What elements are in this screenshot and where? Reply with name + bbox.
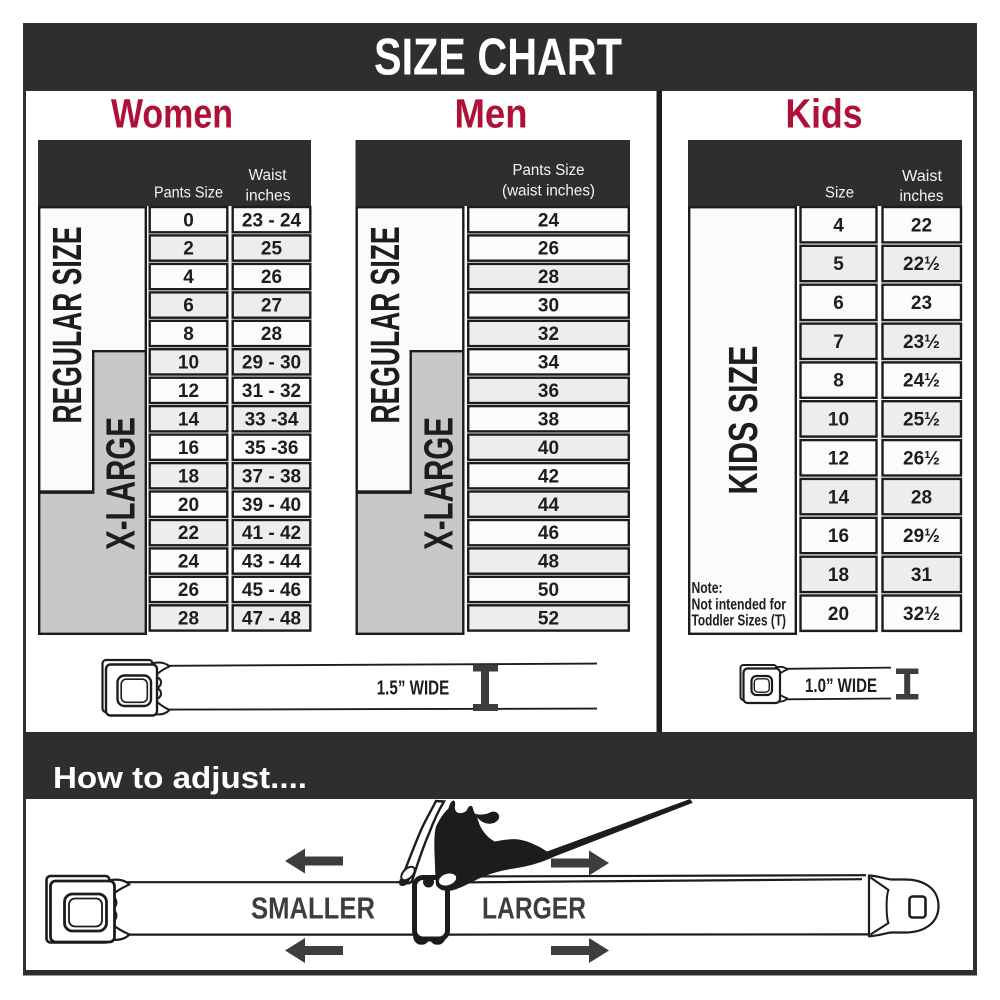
svg-text:44: 44: [538, 495, 560, 516]
svg-text:22: 22: [911, 215, 932, 236]
svg-text:25½: 25½: [903, 410, 940, 431]
svg-text:7: 7: [833, 332, 844, 353]
svg-text:41 - 42: 41 - 42: [242, 523, 301, 544]
svg-text:45 - 46: 45 - 46: [242, 580, 301, 601]
svg-text:23½: 23½: [903, 332, 940, 353]
svg-text:Women: Women: [111, 91, 233, 137]
svg-text:29 - 30: 29 - 30: [242, 353, 301, 374]
svg-text:5: 5: [833, 254, 844, 275]
svg-text:38: 38: [538, 409, 559, 430]
svg-text:26: 26: [538, 239, 559, 260]
svg-text:40: 40: [538, 438, 559, 459]
svg-text:1.0” WIDE: 1.0” WIDE: [805, 675, 877, 697]
svg-text:2: 2: [183, 239, 194, 260]
svg-text:8: 8: [833, 371, 844, 392]
svg-text:43 - 44: 43 - 44: [242, 552, 302, 573]
svg-text:0: 0: [183, 210, 194, 231]
svg-text:10: 10: [828, 410, 849, 431]
svg-text:50: 50: [538, 580, 559, 601]
svg-text:26½: 26½: [903, 448, 940, 469]
svg-text:8: 8: [183, 324, 194, 345]
svg-text:Waist: Waist: [249, 167, 288, 184]
svg-text:30: 30: [538, 296, 559, 317]
svg-text:28: 28: [538, 267, 559, 288]
svg-text:6: 6: [833, 293, 844, 314]
svg-text:4: 4: [833, 215, 844, 236]
svg-text:39 - 40: 39 - 40: [242, 495, 301, 516]
svg-text:28: 28: [261, 324, 282, 345]
svg-text:26: 26: [261, 267, 282, 288]
svg-text:inches: inches: [246, 188, 291, 205]
svg-text:4: 4: [183, 267, 194, 288]
svg-text:48: 48: [538, 552, 559, 573]
svg-text:26: 26: [178, 580, 199, 601]
svg-text:SMALLER: SMALLER: [251, 891, 375, 926]
svg-text:18: 18: [178, 466, 199, 487]
svg-text:42: 42: [538, 466, 559, 487]
svg-text:20: 20: [178, 495, 199, 516]
svg-text:LARGER: LARGER: [482, 891, 586, 926]
svg-text:33 -34: 33 -34: [245, 409, 299, 430]
svg-text:Pants Size: Pants Size: [513, 162, 585, 179]
svg-text:23: 23: [911, 293, 932, 314]
svg-text:22½: 22½: [903, 254, 940, 275]
svg-text:24½: 24½: [903, 371, 940, 392]
svg-text:32½: 32½: [903, 604, 940, 625]
svg-text:34: 34: [538, 353, 560, 374]
svg-text:47 - 48: 47 - 48: [242, 609, 301, 630]
svg-text:52: 52: [538, 609, 559, 630]
svg-text:KIDS SIZE: KIDS SIZE: [720, 346, 766, 495]
svg-text:(waist inches): (waist inches): [502, 183, 595, 200]
svg-text:16: 16: [828, 526, 849, 547]
svg-text:36: 36: [538, 381, 559, 402]
svg-text:How to adjust....: How to adjust....: [53, 760, 307, 795]
svg-text:23 - 24: 23 - 24: [242, 210, 302, 231]
svg-text:24: 24: [538, 210, 560, 231]
svg-text:inches: inches: [900, 188, 944, 205]
svg-text:SIZE CHART: SIZE CHART: [374, 28, 622, 86]
svg-text:27: 27: [261, 296, 282, 317]
svg-text:14: 14: [178, 409, 200, 430]
svg-text:Men: Men: [455, 91, 528, 137]
svg-text:32: 32: [538, 324, 559, 345]
svg-text:X-LARGE: X-LARGE: [97, 417, 143, 550]
svg-text:22: 22: [178, 523, 199, 544]
svg-text:Waist: Waist: [902, 168, 943, 185]
svg-text:Size: Size: [825, 185, 854, 202]
svg-text:1.5” WIDE: 1.5” WIDE: [377, 677, 450, 699]
svg-text:Kids: Kids: [786, 91, 863, 137]
svg-text:12: 12: [828, 448, 849, 469]
svg-text:29½: 29½: [903, 526, 940, 547]
svg-text:20: 20: [828, 604, 849, 625]
svg-text:Note:: Note:: [692, 580, 723, 597]
svg-text:6: 6: [183, 296, 194, 317]
svg-text:28: 28: [178, 609, 199, 630]
svg-text:X-LARGE: X-LARGE: [415, 417, 461, 550]
svg-text:46: 46: [538, 523, 559, 544]
svg-text:24: 24: [178, 552, 200, 573]
svg-text:Not intended for: Not intended for: [692, 596, 787, 613]
svg-text:Toddler Sizes (T): Toddler Sizes (T): [692, 613, 787, 630]
svg-text:16: 16: [178, 438, 199, 459]
svg-text:28: 28: [911, 487, 932, 508]
svg-text:Pants Size: Pants Size: [154, 185, 223, 202]
svg-text:14: 14: [828, 487, 850, 508]
svg-text:10: 10: [178, 353, 199, 374]
svg-text:31 - 32: 31 - 32: [242, 381, 301, 402]
svg-text:REGULAR SIZE: REGULAR SIZE: [362, 227, 408, 424]
svg-text:25: 25: [261, 239, 283, 260]
svg-text:35 -36: 35 -36: [245, 438, 299, 459]
svg-text:18: 18: [828, 565, 849, 586]
svg-text:REGULAR SIZE: REGULAR SIZE: [44, 227, 90, 424]
svg-text:31: 31: [911, 565, 933, 586]
svg-text:12: 12: [178, 381, 199, 402]
svg-text:37 - 38: 37 - 38: [242, 466, 301, 487]
